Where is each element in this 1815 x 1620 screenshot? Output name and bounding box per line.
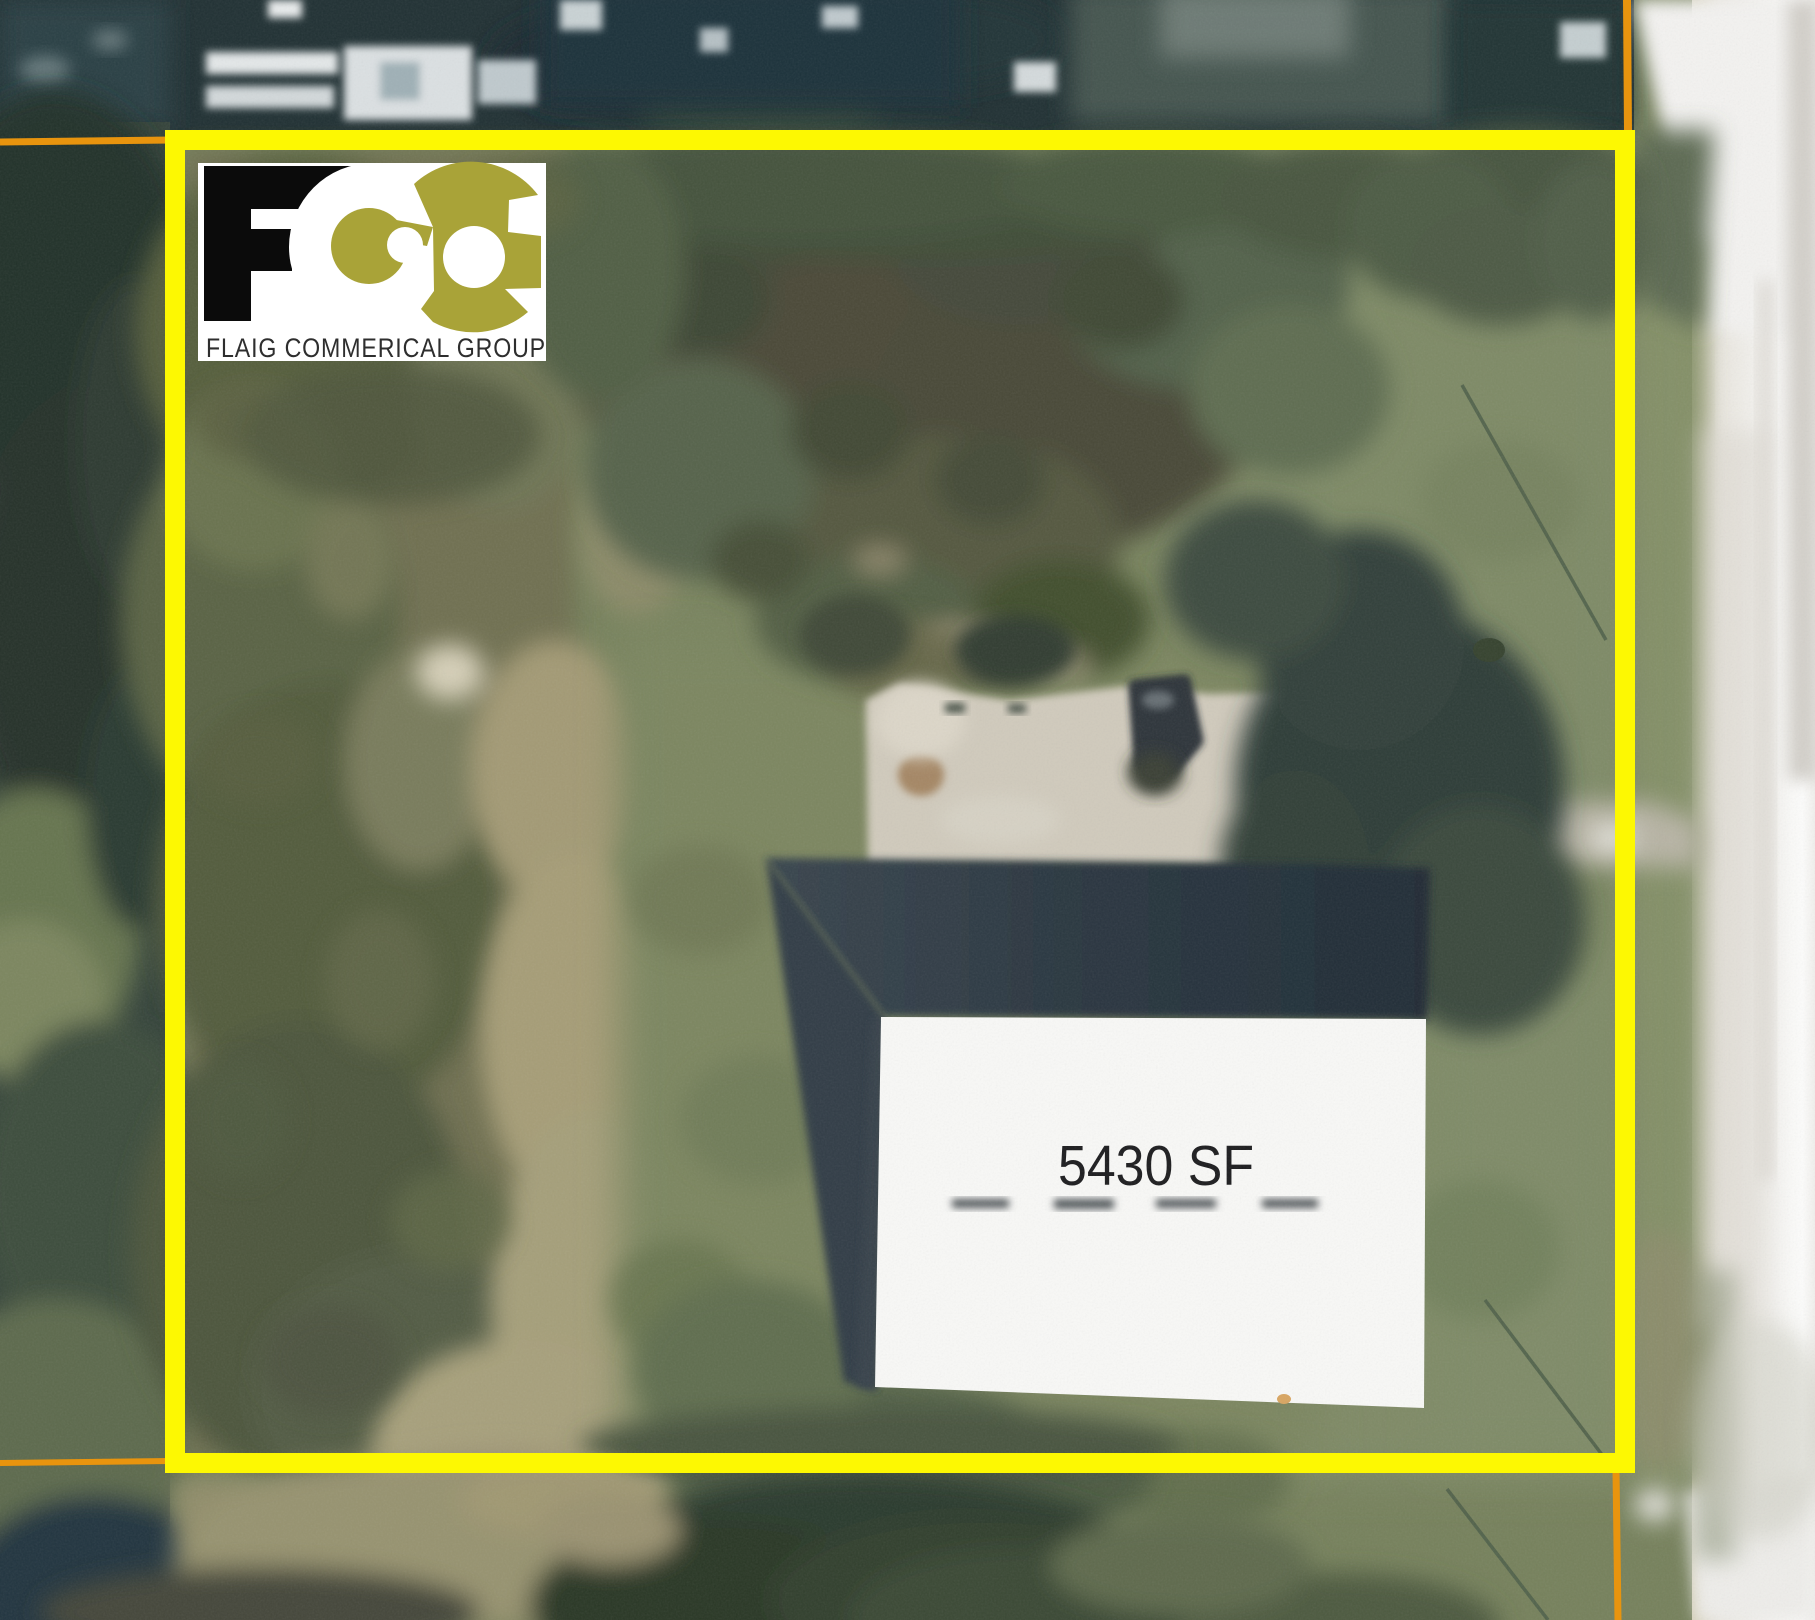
svg-text:FLAIG COMMERICAL GROUP: FLAIG COMMERICAL GROUP [206,333,546,363]
